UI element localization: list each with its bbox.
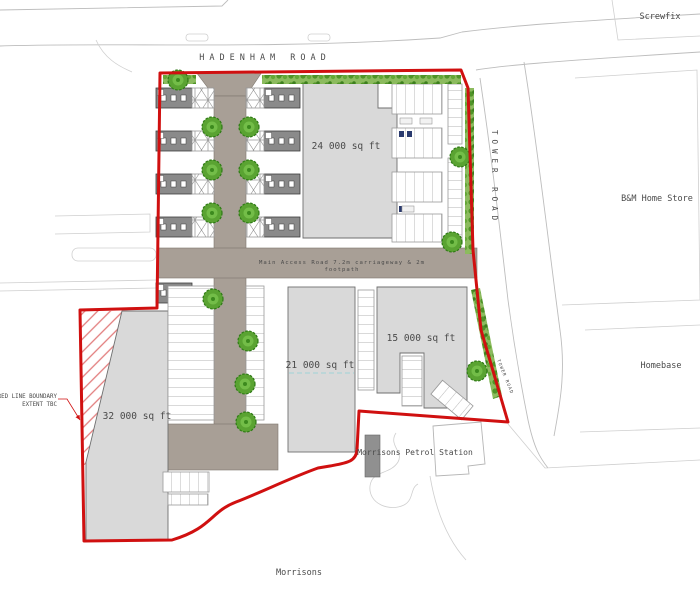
hadenham-road-label: HADENHAM ROAD — [199, 53, 331, 63]
aisle-car-icon — [402, 206, 414, 212]
area-label-21000: 21 000 sq ft — [286, 360, 355, 371]
site-plan: HADENHAM ROAD TOWER ROAD TOWER ROAD Scre… — [0, 0, 700, 592]
petrol-station-label: Morrisons Petrol Station — [357, 448, 473, 457]
access-road-label-line1: Main Access Road 7.2m carriageway & 2m — [259, 260, 425, 266]
parking-bay-icon — [399, 131, 404, 137]
area-label-32000: 32 000 sq ft — [103, 411, 172, 422]
parking-bay-icon — [407, 131, 412, 137]
morrisons-label: Morrisons — [276, 568, 322, 578]
boundary-note-line2: EXTENT TBC — [22, 402, 57, 408]
bm-home-store-label: B&M Home Store — [621, 194, 693, 204]
homebase-label: Homebase — [641, 361, 682, 371]
screwfix-label: Screwfix — [640, 12, 681, 22]
aisle-car-icon — [400, 118, 412, 124]
access-road-label-line2: footpath — [325, 267, 360, 273]
aisle-car-icon — [420, 118, 432, 124]
boundary-note-leader — [58, 399, 80, 420]
tower-road-label: TOWER ROAD — [490, 130, 499, 225]
area-label-15000: 15 000 sq ft — [387, 333, 456, 344]
hedge-strip — [262, 75, 461, 84]
building-24000-sq-ft — [303, 79, 397, 238]
boundary-note-line1: RED LINE BOUNDARY — [0, 394, 57, 400]
area-label-24000: 24 000 sq ft — [312, 141, 381, 152]
